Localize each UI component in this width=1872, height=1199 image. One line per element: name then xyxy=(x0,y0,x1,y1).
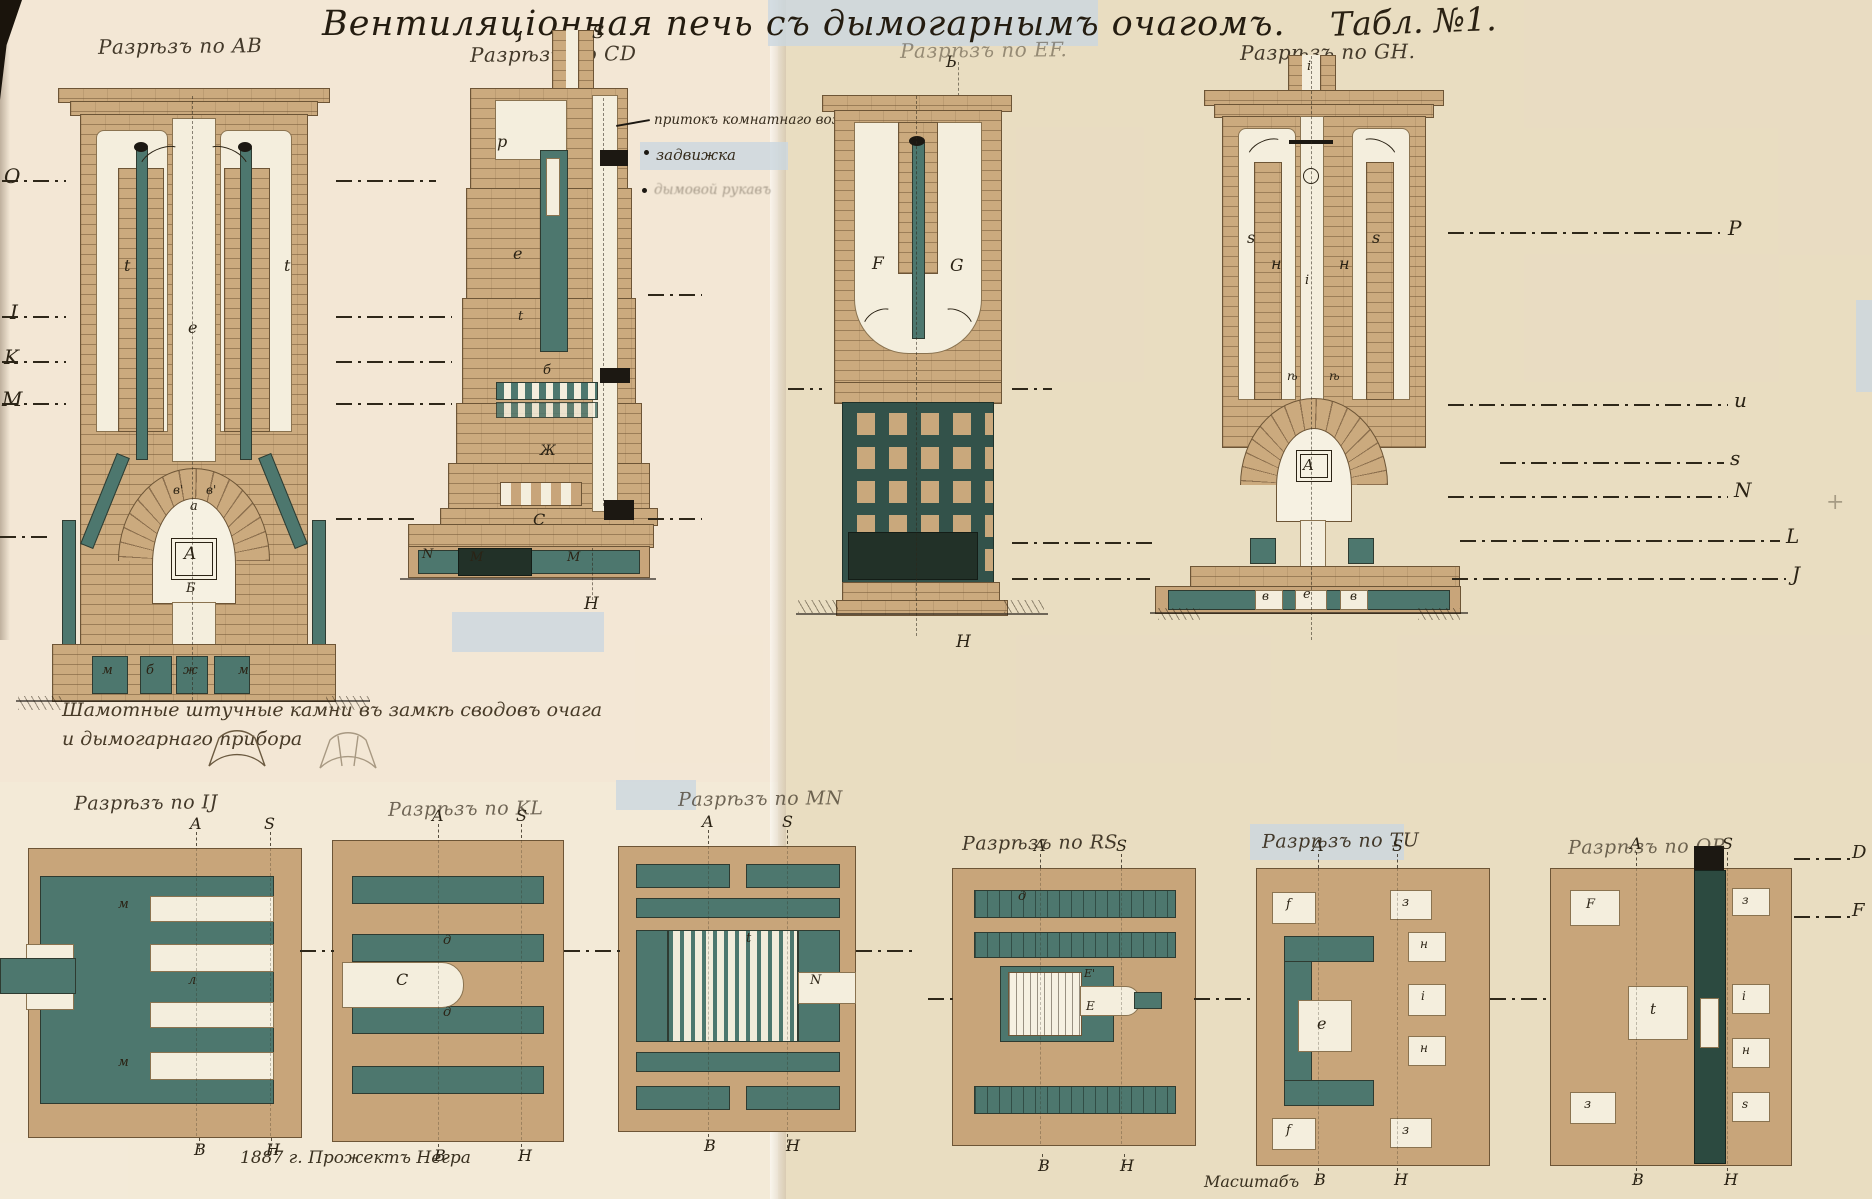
duct-cell xyxy=(1732,1038,1770,1068)
cut-line xyxy=(1636,868,1637,1164)
ground-line xyxy=(1150,612,1468,614)
cut-line xyxy=(1727,868,1728,1164)
letter-mark: В xyxy=(1632,1172,1644,1188)
smoke-column-slot xyxy=(546,158,560,216)
flue-bar xyxy=(636,1052,840,1072)
centerline xyxy=(192,96,193,700)
ground-line xyxy=(400,578,656,580)
flue-bar xyxy=(974,890,1176,918)
letter-mark: i xyxy=(1305,274,1309,287)
letter-mark: д xyxy=(443,934,451,947)
checker-course xyxy=(496,382,598,400)
letter-mark: Ж xyxy=(540,444,556,458)
chimney-flue xyxy=(566,30,578,92)
mark-dash xyxy=(1121,854,1122,868)
letter-mark: G xyxy=(950,258,964,275)
pipe-cap xyxy=(134,142,148,152)
letter-mark: м xyxy=(118,898,129,911)
section-trace-line xyxy=(1448,496,1728,498)
central-flue xyxy=(1300,116,1324,408)
section-trace-line xyxy=(1012,388,1052,390)
letter-mark: Н xyxy=(786,1138,800,1154)
grate-teeth xyxy=(500,482,582,506)
letter-mark: В xyxy=(1038,1158,1050,1174)
letter-mark: t xyxy=(1650,1002,1656,1017)
cut-line xyxy=(787,846,788,1130)
cut-line xyxy=(521,840,522,1140)
letter-mark: В xyxy=(1314,1172,1326,1188)
ground-hatch xyxy=(1418,608,1460,620)
plan-axis-line xyxy=(1490,998,1548,1000)
letter-mark: + xyxy=(1826,492,1844,514)
flue-bar xyxy=(636,898,840,918)
letter-mark: A xyxy=(1630,836,1642,852)
base-slab xyxy=(1190,566,1460,588)
flue-cap xyxy=(1694,846,1724,870)
letter-mark: В xyxy=(434,1148,446,1164)
duct-cell xyxy=(1272,892,1316,924)
highlight-patch xyxy=(1856,300,1872,392)
letter-mark: S xyxy=(516,808,527,824)
letter-mark: р xyxy=(497,134,507,150)
letter-mark: S xyxy=(1116,838,1127,854)
duct-cell xyxy=(1408,984,1446,1016)
section-trace-line xyxy=(336,361,452,363)
flue-slot xyxy=(150,896,274,922)
plan-axis-line xyxy=(856,950,912,952)
letter-mark: в' xyxy=(173,484,183,496)
centerline xyxy=(1311,56,1312,640)
cut-line xyxy=(196,848,197,1136)
letter-mark: з xyxy=(1584,1098,1591,1111)
letter-mark: Б xyxy=(186,582,196,595)
letter-mark: В xyxy=(704,1138,716,1154)
damper-plate xyxy=(600,368,630,383)
letter-mark: P xyxy=(1728,218,1741,238)
letter-mark: С xyxy=(396,972,408,988)
drawing-sheet: Вентиляціонная печь съ дымогарнымъ очаго… xyxy=(0,0,1872,1199)
letter-mark: S xyxy=(1722,836,1733,852)
duct-cell xyxy=(1272,1118,1316,1150)
ground-hatch xyxy=(1158,608,1200,620)
soot-box xyxy=(848,532,978,580)
base-duct xyxy=(1255,590,1283,610)
letter-mark: K xyxy=(4,347,19,367)
letter-mark: S xyxy=(264,816,275,832)
letter-mark: Н xyxy=(266,1142,280,1158)
section-ef-label: Разрѣзъ по EF. xyxy=(900,37,1068,63)
plan-axis-line xyxy=(1794,858,1852,860)
section-trace-line xyxy=(788,388,822,390)
section-trace-line xyxy=(1448,404,1728,406)
letter-mark: Н xyxy=(1394,1172,1408,1188)
letter-mark: б xyxy=(543,364,551,377)
section-trace-line xyxy=(1012,578,1150,580)
flue-bar xyxy=(746,864,840,888)
flue-bar xyxy=(352,876,544,904)
pipe-cap xyxy=(909,136,925,146)
letter-mark: Н xyxy=(1120,1158,1134,1174)
section-trace-line xyxy=(336,403,452,405)
annotation-smoke-duct: дымовой рукавъ xyxy=(654,182,771,198)
base-flue xyxy=(140,656,172,694)
section-line xyxy=(592,548,593,600)
letter-mark: ж xyxy=(183,664,198,677)
pipe-cap xyxy=(238,142,252,152)
letter-mark: i xyxy=(1421,990,1425,1002)
mark-dash xyxy=(787,830,788,844)
centerline xyxy=(916,96,917,636)
letter-mark: A xyxy=(432,808,444,824)
grate-grill xyxy=(668,930,798,1042)
letter-mark: s xyxy=(1247,230,1255,246)
scale-caption: Масштабъ xyxy=(1204,1172,1299,1191)
mark-dash xyxy=(438,824,439,838)
section-trace-line xyxy=(648,518,702,520)
letter-mark: L xyxy=(1786,526,1799,546)
letter-mark: е xyxy=(513,246,522,262)
mark-dash xyxy=(196,832,197,846)
ground-line xyxy=(796,613,1048,615)
letter-mark: в' xyxy=(206,484,216,496)
letter-mark: н xyxy=(1742,1044,1750,1056)
letter-mark: Н xyxy=(956,634,971,651)
flue-label-tag xyxy=(1700,998,1719,1048)
ground-hatch xyxy=(1004,600,1044,613)
sheet-title: Вентиляціонная печь съ дымогарнымъ очаго… xyxy=(322,4,1286,44)
letter-mark: i xyxy=(1742,990,1746,1002)
letter-mark: н xyxy=(1271,256,1282,272)
grate-hatch xyxy=(1008,972,1082,1036)
letter-mark: в xyxy=(1350,590,1357,602)
ash-throat xyxy=(1300,520,1326,568)
flue-bar xyxy=(636,864,730,888)
cut-line xyxy=(1040,868,1041,1144)
leader-dot xyxy=(644,150,649,155)
flue-bar xyxy=(636,1086,730,1110)
mid-band xyxy=(834,382,1002,404)
letter-mark: A xyxy=(702,814,714,830)
letter-mark: N xyxy=(810,974,821,987)
leader-dot xyxy=(642,188,647,193)
vent-stub-line xyxy=(958,62,959,96)
duct-cell xyxy=(1732,984,1770,1014)
ground-hatch xyxy=(798,600,838,613)
letter-mark: f xyxy=(1286,1124,1291,1137)
damper-plate xyxy=(604,500,634,520)
flue-u-bottom xyxy=(1284,1080,1374,1106)
letter-mark: t xyxy=(746,932,751,945)
flue-slot xyxy=(150,1002,274,1028)
duct-cell xyxy=(1732,888,1770,916)
letter-mark: д xyxy=(443,1006,451,1019)
section-trace-line xyxy=(1012,542,1152,544)
letter-mark: н xyxy=(1339,256,1350,272)
letter-mark: S xyxy=(592,24,604,42)
letter-mark: Е xyxy=(1086,1000,1095,1012)
duct-cell xyxy=(1570,1092,1616,1124)
letter-mark: м xyxy=(238,664,249,677)
mark-dash xyxy=(1727,852,1728,866)
letter-mark: з xyxy=(1402,1124,1409,1137)
mark-dash xyxy=(1040,854,1041,868)
letter-mark: s xyxy=(1730,448,1740,468)
plan-mn-label: Разрѣзъ по MN xyxy=(678,787,843,811)
letter-mark: М xyxy=(567,551,580,564)
chimney-wall xyxy=(1320,55,1336,95)
checker-course xyxy=(496,402,598,418)
letter-mark: t xyxy=(124,258,130,274)
letter-mark: A xyxy=(190,816,202,832)
ground-hatch xyxy=(18,696,62,710)
letter-mark: Н xyxy=(518,1148,532,1164)
letter-mark: е xyxy=(1317,1016,1326,1032)
letter-mark: з xyxy=(1402,896,1409,909)
mark-dash xyxy=(1318,854,1319,868)
letter-mark: t xyxy=(518,310,523,323)
highlight-patch xyxy=(452,612,604,652)
base-slab xyxy=(842,582,1000,602)
letter-mark: I xyxy=(10,302,18,322)
cut-line xyxy=(1121,868,1122,1144)
letter-mark: М xyxy=(470,551,483,564)
letter-mark: С xyxy=(533,512,545,528)
section-trace-line xyxy=(648,294,702,296)
section-trace-line xyxy=(336,316,452,318)
letter-mark: t xyxy=(284,258,290,274)
letter-mark: ѣ xyxy=(1287,370,1298,382)
flue-slot xyxy=(150,1052,274,1080)
letter-mark: F xyxy=(1586,898,1595,911)
smoke-pipe xyxy=(912,142,925,339)
outlet-slot xyxy=(798,972,856,1004)
letter-mark: i xyxy=(1307,60,1311,73)
letter-mark: s xyxy=(1742,1098,1748,1110)
letter-mark: е xyxy=(1303,588,1311,601)
keystone-sketch xyxy=(205,726,269,768)
plan-axis-line xyxy=(1794,916,1852,918)
flue-bar xyxy=(974,932,1176,958)
section-trace-line xyxy=(1460,540,1780,542)
plan-axis-line xyxy=(1194,998,1254,1000)
flue-bar xyxy=(746,1086,840,1110)
letter-mark: N xyxy=(1734,480,1752,500)
central-flue xyxy=(172,118,216,462)
smoke-pipe xyxy=(240,148,252,460)
smoke-pipe xyxy=(136,148,148,460)
hearth-box xyxy=(1296,450,1332,482)
flue-slot xyxy=(150,944,274,972)
letter-mark: Ь xyxy=(946,54,957,70)
letter-mark: u xyxy=(1734,390,1747,410)
base-flue xyxy=(1250,538,1276,564)
channel-island xyxy=(1366,162,1394,400)
letter-mark: s xyxy=(1372,230,1380,246)
spout-tip xyxy=(1134,992,1162,1009)
annotation-damper: задвижка xyxy=(656,146,736,164)
letter-mark: A xyxy=(1034,838,1046,854)
letter-mark: н xyxy=(1420,938,1428,950)
letter-mark: Е' xyxy=(1084,968,1095,979)
mark-dash xyxy=(708,830,709,844)
cut-line xyxy=(1397,868,1398,1164)
letter-mark: а xyxy=(190,500,198,513)
channel-island xyxy=(1254,162,1282,400)
letter-mark: Н xyxy=(584,596,599,613)
letter-mark: O xyxy=(4,166,20,186)
base-slab xyxy=(408,524,654,548)
letter-mark: ѣ xyxy=(1329,370,1340,382)
duct-cell xyxy=(1732,1092,1770,1122)
letter-mark: е xyxy=(188,320,197,336)
plan-axis-line xyxy=(928,998,956,1000)
letter-mark: A xyxy=(184,546,196,563)
ash-throat xyxy=(172,602,216,648)
letter-mark: S xyxy=(1392,838,1403,854)
plate-number: Табл. №1. xyxy=(1329,0,1497,44)
hearth-cell xyxy=(1628,986,1688,1040)
letter-mark: л xyxy=(188,974,196,987)
letter-mark: з xyxy=(1742,894,1749,906)
plan-axis-line xyxy=(300,950,334,952)
letter-mark: F xyxy=(1852,902,1865,920)
letter-mark: M xyxy=(2,389,22,409)
mark-dash xyxy=(270,832,271,846)
flue-bar xyxy=(352,1066,544,1094)
flue-u-top xyxy=(1284,936,1374,962)
base-flue xyxy=(1348,538,1374,564)
mark-dash xyxy=(1636,852,1637,866)
letter-mark: В xyxy=(194,1142,206,1158)
sheet-edge-shadow xyxy=(0,0,10,640)
section-trace-line xyxy=(1448,232,1720,234)
cut-line xyxy=(270,848,271,1136)
letter-mark: A xyxy=(1312,838,1324,854)
letter-mark: A xyxy=(1303,458,1314,473)
inlet-spout xyxy=(0,958,76,994)
letter-mark: Н xyxy=(1724,1172,1738,1188)
letter-mark: м xyxy=(118,1056,129,1069)
letter-mark: F xyxy=(872,256,884,273)
section-trace-line xyxy=(0,536,52,538)
cut-line xyxy=(708,846,709,1130)
letter-mark: б xyxy=(146,664,154,677)
section-trace-line xyxy=(1452,578,1786,580)
letter-mark: N xyxy=(422,548,433,561)
letter-mark: д xyxy=(1018,890,1026,903)
plan-ij-label: Разрѣзъ по IJ xyxy=(74,791,218,815)
keystone-sketch-split xyxy=(316,728,380,770)
flue-bar xyxy=(974,1086,1176,1114)
side-wall xyxy=(636,930,668,1042)
plan-axis-line xyxy=(564,950,620,952)
section-trace-line xyxy=(336,180,436,182)
section-trace-line xyxy=(1500,462,1724,464)
damper-plate xyxy=(600,150,628,166)
letter-mark: D xyxy=(1852,844,1866,862)
mark-dash xyxy=(521,824,522,838)
mark-dash xyxy=(1397,854,1398,868)
letter-mark: м xyxy=(102,664,113,677)
letter-mark: в xyxy=(1262,590,1269,602)
letter-mark: f xyxy=(1286,898,1291,911)
letter-mark: J xyxy=(1792,564,1800,584)
cut-line xyxy=(438,840,439,1140)
letter-mark: н xyxy=(1420,1042,1428,1054)
section-ab-label: Разрѣзъ по AB xyxy=(98,33,263,59)
section-trace-line xyxy=(336,518,420,520)
letter-mark: S xyxy=(782,814,793,830)
